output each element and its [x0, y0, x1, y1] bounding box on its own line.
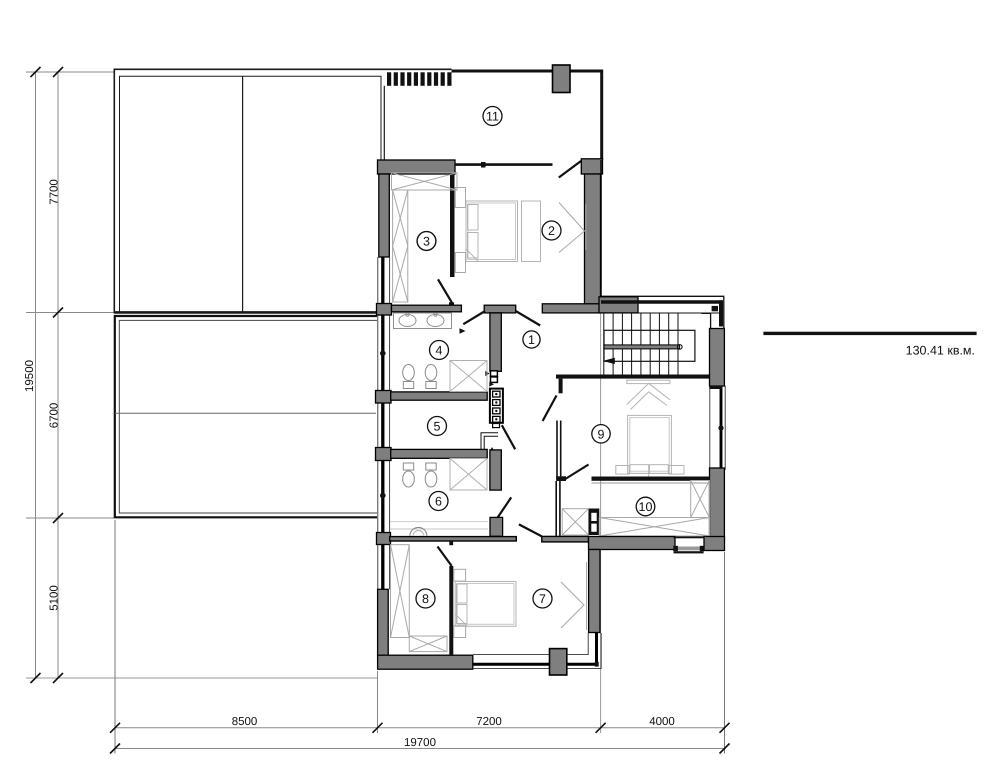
- svg-text:10: 10: [639, 500, 653, 514]
- svg-text:8500: 8500: [232, 716, 258, 728]
- svg-text:1: 1: [528, 333, 535, 347]
- svg-text:130.41 кв.м.: 130.41 кв.м.: [906, 343, 975, 357]
- svg-text:7200: 7200: [476, 716, 502, 728]
- svg-text:6700: 6700: [49, 403, 61, 429]
- svg-text:5100: 5100: [49, 585, 61, 611]
- svg-text:4: 4: [436, 344, 443, 358]
- svg-text:11: 11: [486, 110, 499, 124]
- svg-text:9: 9: [598, 427, 605, 441]
- svg-text:5: 5: [434, 420, 441, 434]
- svg-text:7: 7: [539, 592, 546, 606]
- svg-text:19500: 19500: [24, 360, 36, 392]
- svg-text:6: 6: [435, 495, 442, 509]
- svg-text:19700: 19700: [404, 737, 436, 749]
- svg-text:3: 3: [423, 235, 430, 249]
- svg-text:2: 2: [548, 224, 555, 238]
- svg-text:7700: 7700: [49, 179, 61, 205]
- svg-text:8: 8: [422, 592, 429, 606]
- svg-text:4000: 4000: [649, 716, 675, 728]
